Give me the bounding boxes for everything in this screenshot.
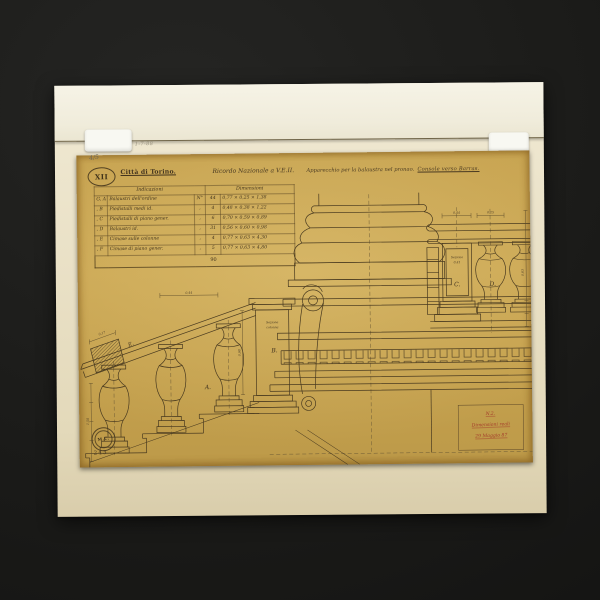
dim-rail-section: 0,17: [98, 330, 107, 336]
dim-pedestal-c-width: 0,44: [453, 211, 460, 215]
dim-pedestal-b: 0,98: [238, 349, 242, 356]
dim-right-chain: 0,63: [521, 269, 525, 276]
pedestal-b-note-2: colonna: [266, 325, 278, 329]
mat-board: 1-7-88 4/5 XII Città di Torino. Ricordo …: [54, 82, 546, 517]
dim-stair-top: 0,44: [185, 291, 192, 295]
drawing-sheet: 4/5 XII Città di Torino. Ricordo Naziona…: [76, 150, 533, 467]
archive-number: 243: [94, 451, 108, 457]
photo-scene: 1-7-88 4/5 XII Città di Torino. Ricordo …: [0, 0, 600, 600]
mat-pencil-note: 1-7-88: [135, 142, 154, 147]
label-c: C.: [454, 281, 460, 288]
dim-baluster-d-width: 0,25: [487, 210, 494, 214]
dim-left-chain: 1,58: [86, 418, 90, 425]
hinge-tape-left: [85, 129, 132, 151]
red-ink-note: N.2. Dimensioni reali 29 Maggio 87: [459, 408, 523, 443]
label-a: A.: [204, 384, 211, 391]
round-stamp-text: M.C.: [97, 436, 110, 442]
column-base: [287, 192, 451, 286]
panel-c-note-1: Sezione: [451, 255, 463, 259]
red-note-line-3: 29 Maggio 87: [460, 430, 523, 443]
console-scroll: [298, 285, 325, 411]
stair-steps: [85, 401, 360, 467]
rail-section-hatch: [90, 339, 124, 373]
panel-c-note-2: 0,41: [454, 260, 461, 264]
label-d: D.: [489, 281, 497, 288]
hinge-tape-right: [489, 132, 529, 152]
label-b: B.: [270, 347, 277, 354]
pedestal-b-note-1: Sezione: [266, 320, 278, 324]
